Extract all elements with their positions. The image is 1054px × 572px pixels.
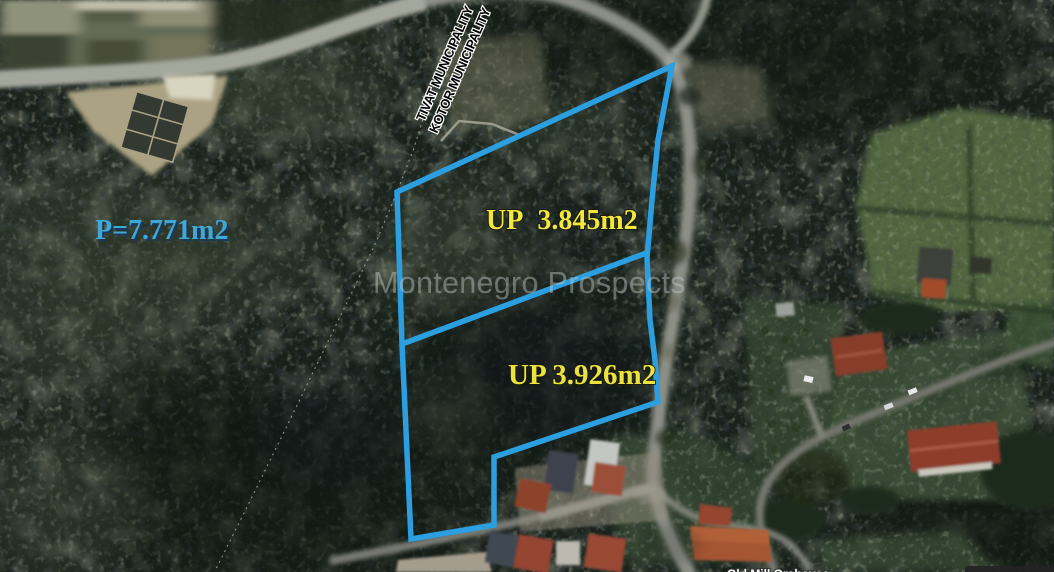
svg-text:UP 3.845m2: UP 3.845m2 [486,205,638,236]
svg-text:Old Mill Orahovac: Old Mill Orahovac [727,567,829,572]
svg-text:UP 3.926m2: UP 3.926m2 [508,359,656,391]
svg-text:Montenegro Prospects: Montenegro Prospects [373,266,686,300]
svg-text:P=7.771m2: P=7.771m2 [95,215,228,246]
